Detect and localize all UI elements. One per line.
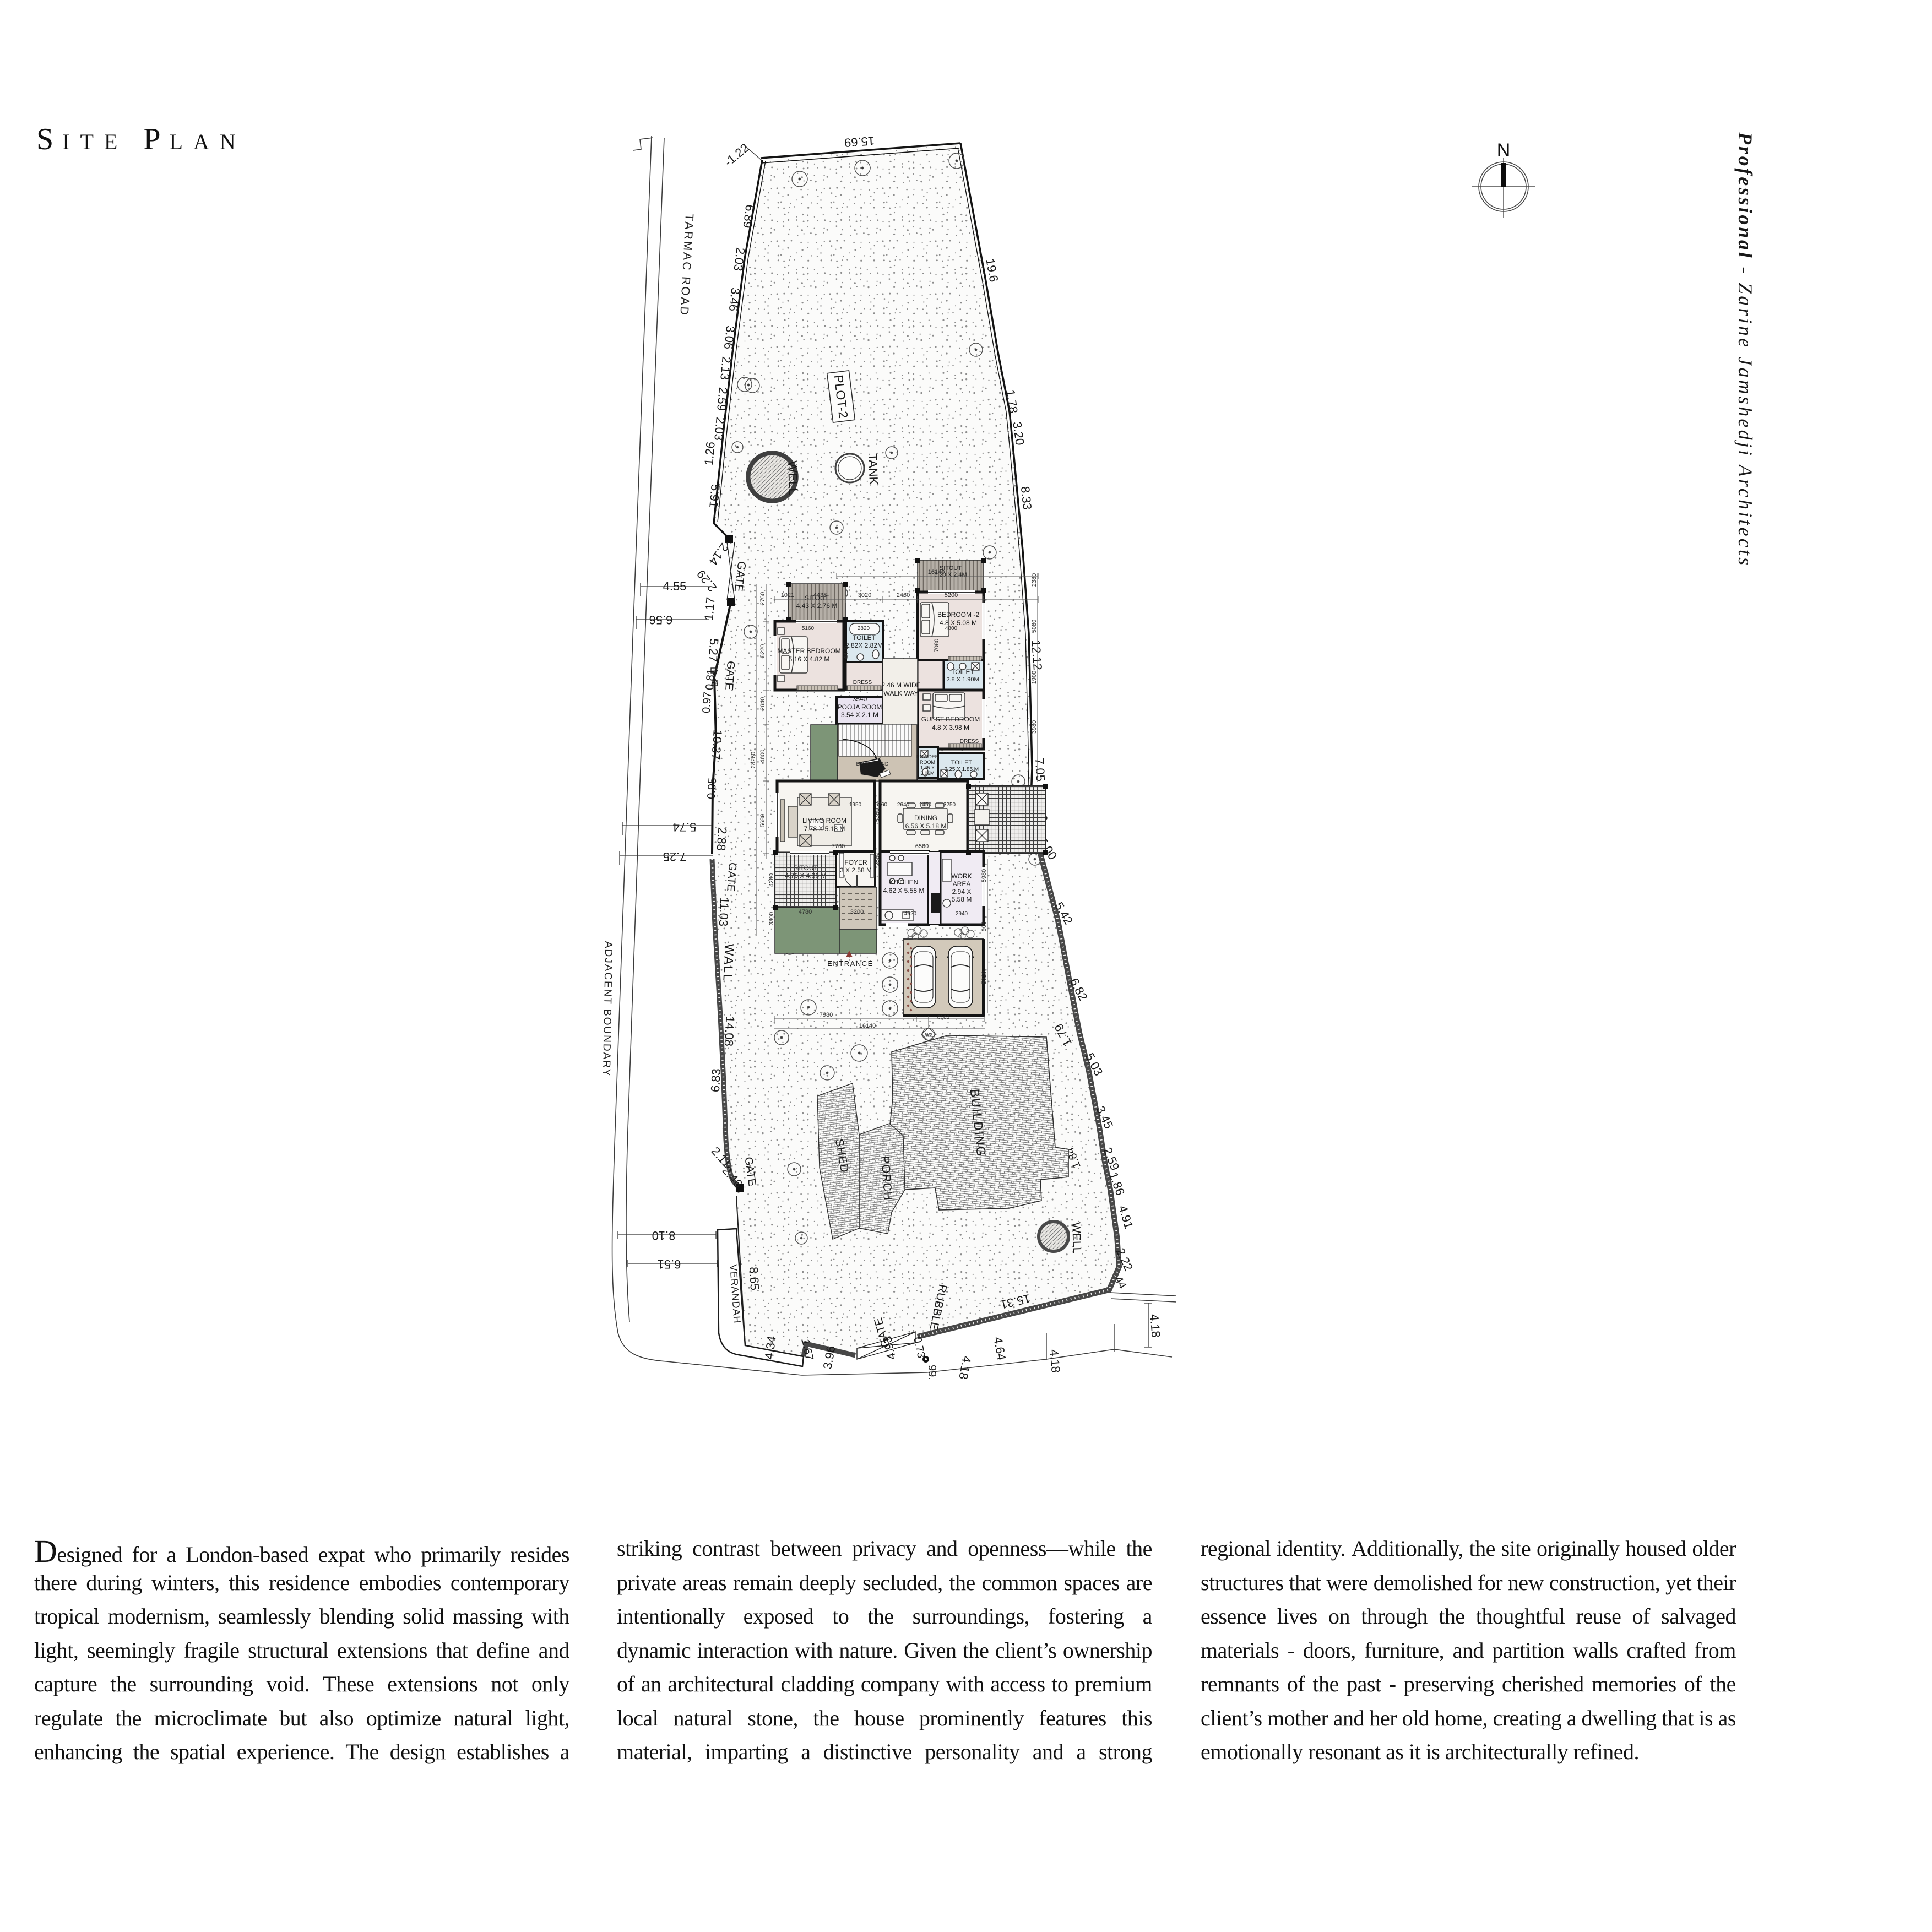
svg-text:LIVING ROOM: LIVING ROOM bbox=[802, 817, 846, 824]
svg-text:GATE: GATE bbox=[724, 862, 739, 892]
svg-text:WALK WAY: WALK WAY bbox=[884, 690, 919, 697]
svg-text:3250: 3250 bbox=[943, 802, 956, 808]
svg-text:WELL: WELL bbox=[1070, 1222, 1083, 1254]
svg-text:2640: 2640 bbox=[897, 802, 910, 808]
svg-text:TOILET: TOILET bbox=[951, 668, 974, 676]
svg-text:5220: 5220 bbox=[759, 644, 766, 658]
svg-text:POOJA ROOM: POOJA ROOM bbox=[838, 703, 882, 711]
svg-text:2.29: 2.29 bbox=[694, 567, 719, 594]
svg-text:TOILET: TOILET bbox=[951, 759, 973, 766]
svg-text:PIANO: PIANO bbox=[865, 767, 880, 772]
svg-text:DRESS: DRESS bbox=[960, 739, 979, 745]
svg-text:7.78 X 5.18 M: 7.78 X 5.18 M bbox=[804, 825, 845, 833]
svg-text:2940: 2940 bbox=[956, 911, 968, 917]
svg-text:N: N bbox=[1497, 140, 1511, 161]
svg-text:7.25: 7.25 bbox=[663, 850, 687, 864]
svg-text:8.65: 8.65 bbox=[747, 1267, 762, 1291]
svg-text:3 X 2.58 M: 3 X 2.58 M bbox=[840, 866, 872, 874]
svg-text:5.16 X 4.82 M: 5.16 X 4.82 M bbox=[789, 655, 830, 663]
svg-text:3.06M: 3.06M bbox=[920, 770, 934, 776]
svg-text:1450: 1450 bbox=[919, 802, 932, 808]
svg-text:0.73: 0.73 bbox=[911, 1336, 927, 1359]
svg-text:-1.22: -1.22 bbox=[721, 141, 751, 169]
svg-text:14.08: 14.08 bbox=[722, 1016, 737, 1046]
svg-text:5080: 5080 bbox=[1031, 620, 1038, 633]
svg-text:WALL: WALL bbox=[720, 943, 737, 983]
svg-text:4438: 4438 bbox=[813, 592, 827, 599]
svg-text:2820: 2820 bbox=[858, 626, 870, 632]
svg-text:0.95: 0.95 bbox=[705, 777, 719, 799]
svg-text:6.83: 6.83 bbox=[708, 1068, 723, 1093]
svg-text:W2: W2 bbox=[925, 1033, 932, 1038]
svg-text:4.64: 4.64 bbox=[991, 1336, 1008, 1361]
svg-text:FOYER: FOYER bbox=[844, 859, 867, 866]
svg-text:4.43 X 2.76 M: 4.43 X 2.76 M bbox=[796, 602, 838, 610]
svg-text:28260: 28260 bbox=[750, 752, 757, 769]
svg-text:11.03: 11.03 bbox=[717, 897, 732, 927]
svg-text:1.17: 1.17 bbox=[702, 596, 718, 621]
svg-text:6260: 6260 bbox=[875, 802, 888, 808]
svg-text:6560: 6560 bbox=[915, 843, 929, 850]
svg-text:8.10: 8.10 bbox=[652, 1229, 676, 1242]
svg-text:5920: 5920 bbox=[981, 971, 987, 984]
svg-text:Professional - Zarine Jamshedj: Professional - Zarine Jamshedji Architec… bbox=[1734, 132, 1756, 567]
svg-text:1900: 1900 bbox=[1031, 671, 1038, 684]
svg-text:ADJACENT BOUNDARY: ADJACENT BOUNDARY bbox=[600, 941, 614, 1077]
svg-text:5.58 M: 5.58 M bbox=[952, 896, 972, 903]
svg-text:7080: 7080 bbox=[934, 639, 940, 652]
svg-text:4.18: 4.18 bbox=[1047, 1349, 1063, 1374]
svg-text:99.: 99. bbox=[926, 1365, 938, 1380]
svg-text:4600: 4600 bbox=[759, 750, 766, 763]
svg-text:1.26: 1.26 bbox=[702, 441, 718, 466]
svg-text:5680: 5680 bbox=[759, 814, 766, 827]
svg-text:WELL: WELL bbox=[785, 460, 801, 496]
svg-text:4.91: 4.91 bbox=[1116, 1204, 1136, 1230]
svg-text:0.81: 0.81 bbox=[704, 668, 718, 690]
svg-text:4620: 4620 bbox=[904, 911, 917, 917]
svg-text:2460: 2460 bbox=[897, 592, 910, 599]
svg-text:6.56 X 5.18 M: 6.56 X 5.18 M bbox=[905, 822, 947, 830]
svg-text:0.97: 0.97 bbox=[701, 691, 714, 713]
svg-text:KITCHEN: KITCHEN bbox=[889, 878, 919, 886]
svg-text:4.18: 4.18 bbox=[956, 1355, 974, 1381]
svg-text:3020: 3020 bbox=[858, 592, 871, 599]
svg-text:TOILET: TOILET bbox=[853, 634, 876, 642]
svg-text:5380: 5380 bbox=[874, 808, 881, 822]
svg-text:6.89: 6.89 bbox=[740, 204, 757, 229]
svg-text:906: 906 bbox=[981, 921, 987, 931]
svg-text:16140: 16140 bbox=[859, 1023, 876, 1029]
svg-text:DRESS: DRESS bbox=[853, 680, 872, 686]
svg-text:4.8 X 3.98 M: 4.8 X 3.98 M bbox=[932, 724, 969, 731]
svg-text:5200: 5200 bbox=[945, 592, 958, 599]
svg-text:3980: 3980 bbox=[1031, 720, 1038, 734]
svg-text:ROOM: ROOM bbox=[920, 759, 935, 765]
svg-text:DINING: DINING bbox=[914, 814, 937, 822]
svg-text:BABY GRAND: BABY GRAND bbox=[856, 761, 889, 767]
svg-text:1021: 1021 bbox=[781, 592, 794, 599]
svg-text:7.05: 7.05 bbox=[1033, 758, 1048, 782]
svg-text:ENTRANCE: ENTRANCE bbox=[827, 959, 873, 968]
svg-text:1.45 X: 1.45 X bbox=[920, 765, 935, 770]
svg-text:TARMAC ROAD: TARMAC ROAD bbox=[677, 214, 696, 317]
svg-text:3300: 3300 bbox=[768, 912, 775, 925]
svg-text:3.25 X 1.85 M: 3.25 X 1.85 M bbox=[945, 767, 979, 773]
svg-text:3200: 3200 bbox=[850, 909, 864, 915]
svg-text:WORK: WORK bbox=[951, 872, 972, 880]
svg-text:4.34: 4.34 bbox=[762, 1335, 779, 1360]
svg-text:SITOUT: SITOUT bbox=[794, 864, 818, 872]
svg-text:MASTER BEDROOM: MASTER BEDROOM bbox=[777, 647, 840, 655]
svg-text:4.76 X 4.36 M: 4.76 X 4.36 M bbox=[785, 872, 827, 880]
svg-text:3.46: 3.46 bbox=[726, 287, 742, 312]
svg-text:16140: 16140 bbox=[928, 569, 945, 576]
svg-text:7980: 7980 bbox=[820, 1012, 833, 1018]
svg-text:2380: 2380 bbox=[1031, 573, 1038, 587]
svg-text:POWDER: POWDER bbox=[916, 754, 939, 759]
svg-text:2760: 2760 bbox=[759, 592, 766, 605]
svg-text:10.37: 10.37 bbox=[709, 729, 725, 761]
svg-text:5160: 5160 bbox=[802, 626, 815, 632]
svg-text:15.69: 15.69 bbox=[844, 134, 875, 150]
svg-text:2.59: 2.59 bbox=[714, 387, 730, 411]
svg-text:5.91: 5.91 bbox=[707, 484, 723, 508]
svg-text:GATE: GATE bbox=[723, 660, 737, 690]
svg-text:3.54 X 2.1 M: 3.54 X 2.1 M bbox=[841, 711, 878, 719]
svg-text:5.27: 5.27 bbox=[706, 638, 721, 662]
svg-text:2.03: 2.03 bbox=[731, 247, 747, 272]
svg-text:GUEST BEDROOM: GUEST BEDROOM bbox=[921, 715, 980, 723]
svg-text:2.82X 2.82M: 2.82X 2.82M bbox=[845, 642, 883, 649]
svg-text:2640: 2640 bbox=[759, 697, 766, 710]
svg-text:2.88: 2.88 bbox=[714, 827, 730, 851]
svg-text:2.46 M WIDE: 2.46 M WIDE bbox=[881, 681, 920, 689]
svg-text:2.94 X: 2.94 X bbox=[952, 888, 972, 896]
svg-text:BEDROOM -2: BEDROOM -2 bbox=[937, 611, 979, 618]
svg-text:4.62 X 5.58 M: 4.62 X 5.58 M bbox=[883, 887, 925, 894]
svg-text:8.33: 8.33 bbox=[1018, 486, 1034, 511]
svg-text:4.18: 4.18 bbox=[1147, 1314, 1163, 1338]
svg-text:5980: 5980 bbox=[981, 869, 987, 882]
svg-text:7780: 7780 bbox=[832, 843, 845, 850]
svg-text:4280: 4280 bbox=[768, 873, 775, 887]
svg-text:2580: 2580 bbox=[874, 853, 881, 866]
svg-text:AREA: AREA bbox=[953, 880, 971, 888]
svg-text:2.13: 2.13 bbox=[718, 356, 734, 381]
svg-text:6.51: 6.51 bbox=[658, 1257, 681, 1271]
svg-text:2.8 X 1.90M: 2.8 X 1.90M bbox=[946, 676, 979, 683]
svg-text:3.06: 3.06 bbox=[721, 325, 737, 350]
svg-text:12.12: 12.12 bbox=[1029, 639, 1045, 671]
svg-text:5.74: 5.74 bbox=[673, 820, 697, 834]
svg-text:1950: 1950 bbox=[849, 802, 862, 808]
svg-text:TANK: TANK bbox=[866, 453, 881, 485]
svg-text:3540: 3540 bbox=[853, 695, 867, 703]
svg-text:8160: 8160 bbox=[937, 1014, 950, 1021]
svg-text:4800: 4800 bbox=[945, 626, 958, 632]
svg-text:4820: 4820 bbox=[843, 646, 850, 659]
svg-text:4780: 4780 bbox=[799, 909, 812, 915]
svg-text:2.03: 2.03 bbox=[712, 416, 728, 441]
